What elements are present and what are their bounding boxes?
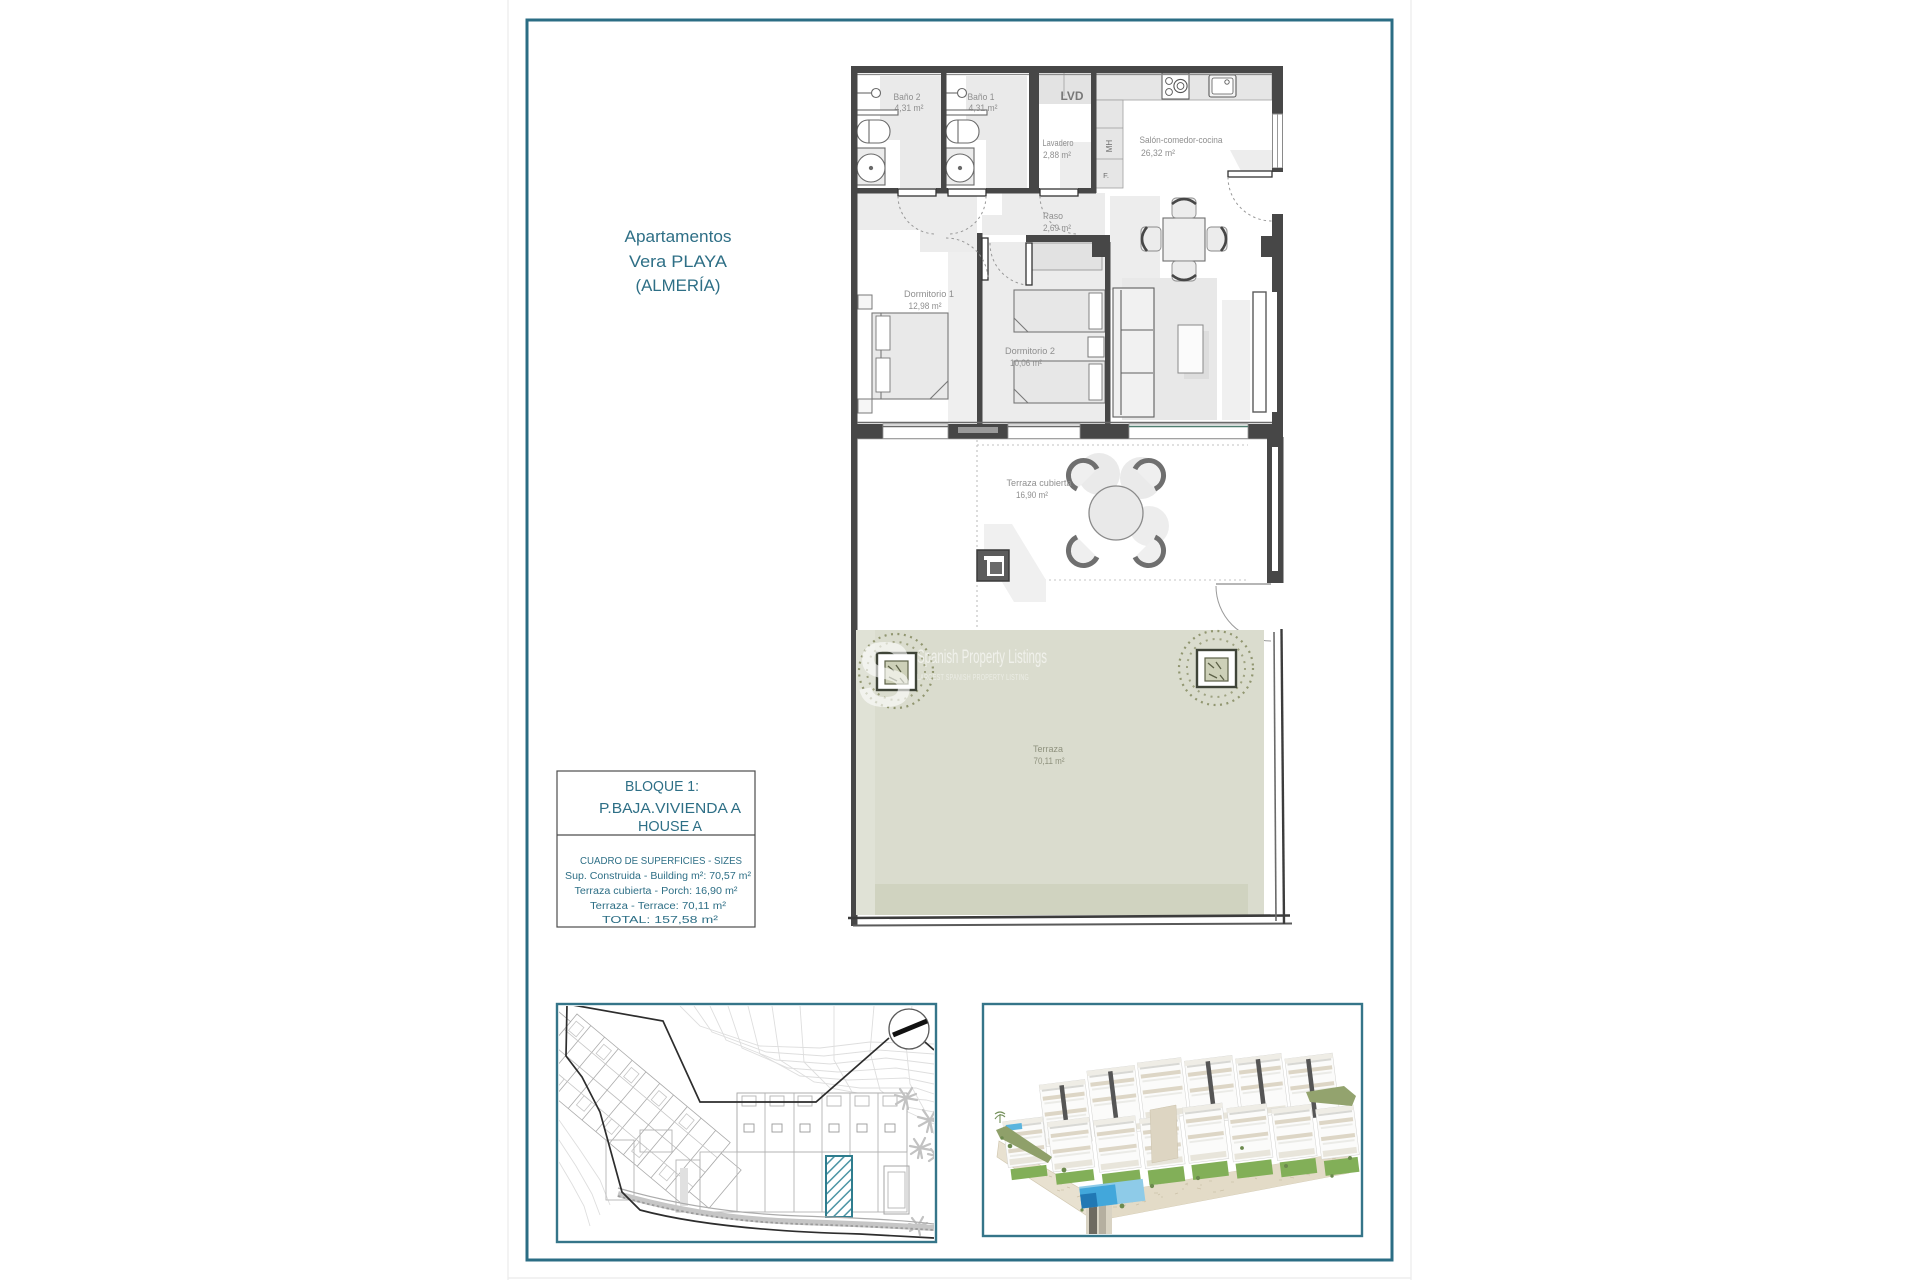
svg-text:P.BAJA.VIVIENDA A: P.BAJA.VIVIENDA A [599,800,741,817]
svg-text:MH: MH [1105,140,1114,153]
svg-text:Terraza cubierta: Terraza cubierta [1007,478,1073,489]
svg-text:Paso: Paso [1043,211,1063,222]
svg-text:Sup. Construida - Building m²: Sup. Construida - Building m²: 70,57 m² [565,871,752,882]
svg-text:BLOQUE 1:: BLOQUE 1: [625,778,699,795]
svg-text:Lavadero: Lavadero [1043,138,1074,149]
svg-text:Salón-comedor-cocina: Salón-comedor-cocina [1140,135,1224,146]
svg-text:Baño 1: Baño 1 [968,92,995,103]
svg-text:2,69 m²: 2,69 m² [1043,223,1071,234]
svg-text:LVD: LVD [1061,89,1084,103]
svg-text:HOUSE A: HOUSE A [638,818,702,835]
svg-text:CUADRO DE SUPERFICIES - SIZES: CUADRO DE SUPERFICIES - SIZES [580,856,742,867]
svg-text:4,31 m²: 4,31 m² [969,103,998,114]
svg-text:Baño 2: Baño 2 [894,92,921,103]
svg-text:Terraza - Terrace: 70,11 m²: Terraza - Terrace: 70,11 m² [590,901,727,912]
svg-text:Spanish Property Listings: Spanish Property Listings [917,647,1047,668]
svg-text:Dormitorio 2: Dormitorio 2 [1005,346,1055,357]
svg-text:16,90 m²: 16,90 m² [1016,490,1048,501]
svg-text:TOTAL: 157,58 m²: TOTAL: 157,58 m² [602,915,719,926]
svg-text:70,11 m²: 70,11 m² [1034,756,1065,767]
svg-text:LARGEST SPANISH PROPERTY LISTI: LARGEST SPANISH PROPERTY LISTING [917,672,1029,682]
svg-text:S: S [857,624,913,726]
svg-text:12,98 m²: 12,98 m² [909,301,942,312]
svg-text:Vera PLAYA: Vera PLAYA [629,252,728,271]
svg-text:Terraza cubierta - Porch: 16,: Terraza cubierta - Porch: 16,90 m² [575,886,739,897]
svg-text:2,88 m²: 2,88 m² [1043,150,1071,161]
svg-text:F.: F. [1103,171,1109,180]
svg-text:Dormitorio 1: Dormitorio 1 [904,289,954,300]
svg-text:26,32 m²: 26,32 m² [1141,148,1175,159]
svg-text:(ALMERÍA): (ALMERÍA) [636,276,721,295]
svg-text:Apartamentos: Apartamentos [625,227,732,246]
svg-text:4,31 m²: 4,31 m² [895,103,924,114]
svg-text:Terraza: Terraza [1033,744,1064,755]
svg-text:10,06 m²: 10,06 m² [1010,358,1042,369]
